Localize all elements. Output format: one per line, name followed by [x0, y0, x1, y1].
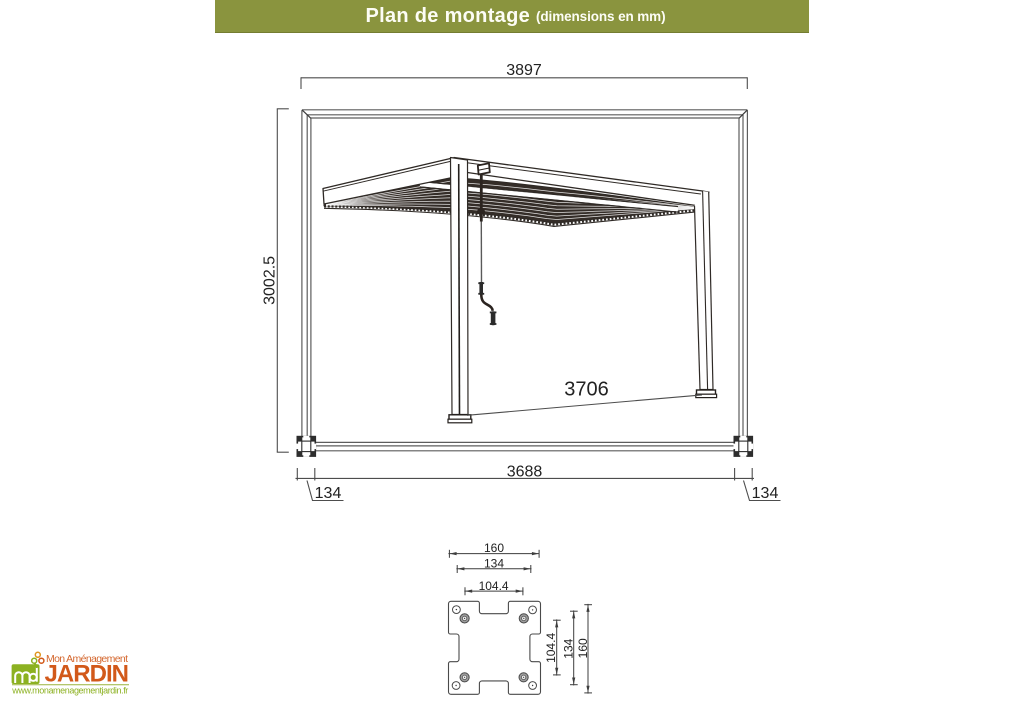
svg-text:104.4: 104.4 — [479, 579, 509, 593]
svg-text:104.4: 104.4 — [544, 633, 558, 663]
svg-text:160: 160 — [484, 541, 504, 555]
svg-text:134: 134 — [752, 485, 779, 502]
svg-text:3002.5: 3002.5 — [262, 256, 279, 305]
svg-text:134: 134 — [561, 638, 575, 658]
svg-text:www.monamenagementjardin.fr: www.monamenagementjardin.fr — [11, 686, 128, 696]
svg-text:160: 160 — [576, 638, 590, 658]
svg-text:134: 134 — [315, 485, 342, 502]
svg-text:JARDIN: JARDIN — [45, 661, 130, 688]
svg-text:3688: 3688 — [507, 463, 543, 480]
svg-text:134: 134 — [484, 557, 504, 571]
svg-text:3706: 3706 — [564, 379, 609, 401]
svg-text:3897: 3897 — [506, 62, 542, 79]
